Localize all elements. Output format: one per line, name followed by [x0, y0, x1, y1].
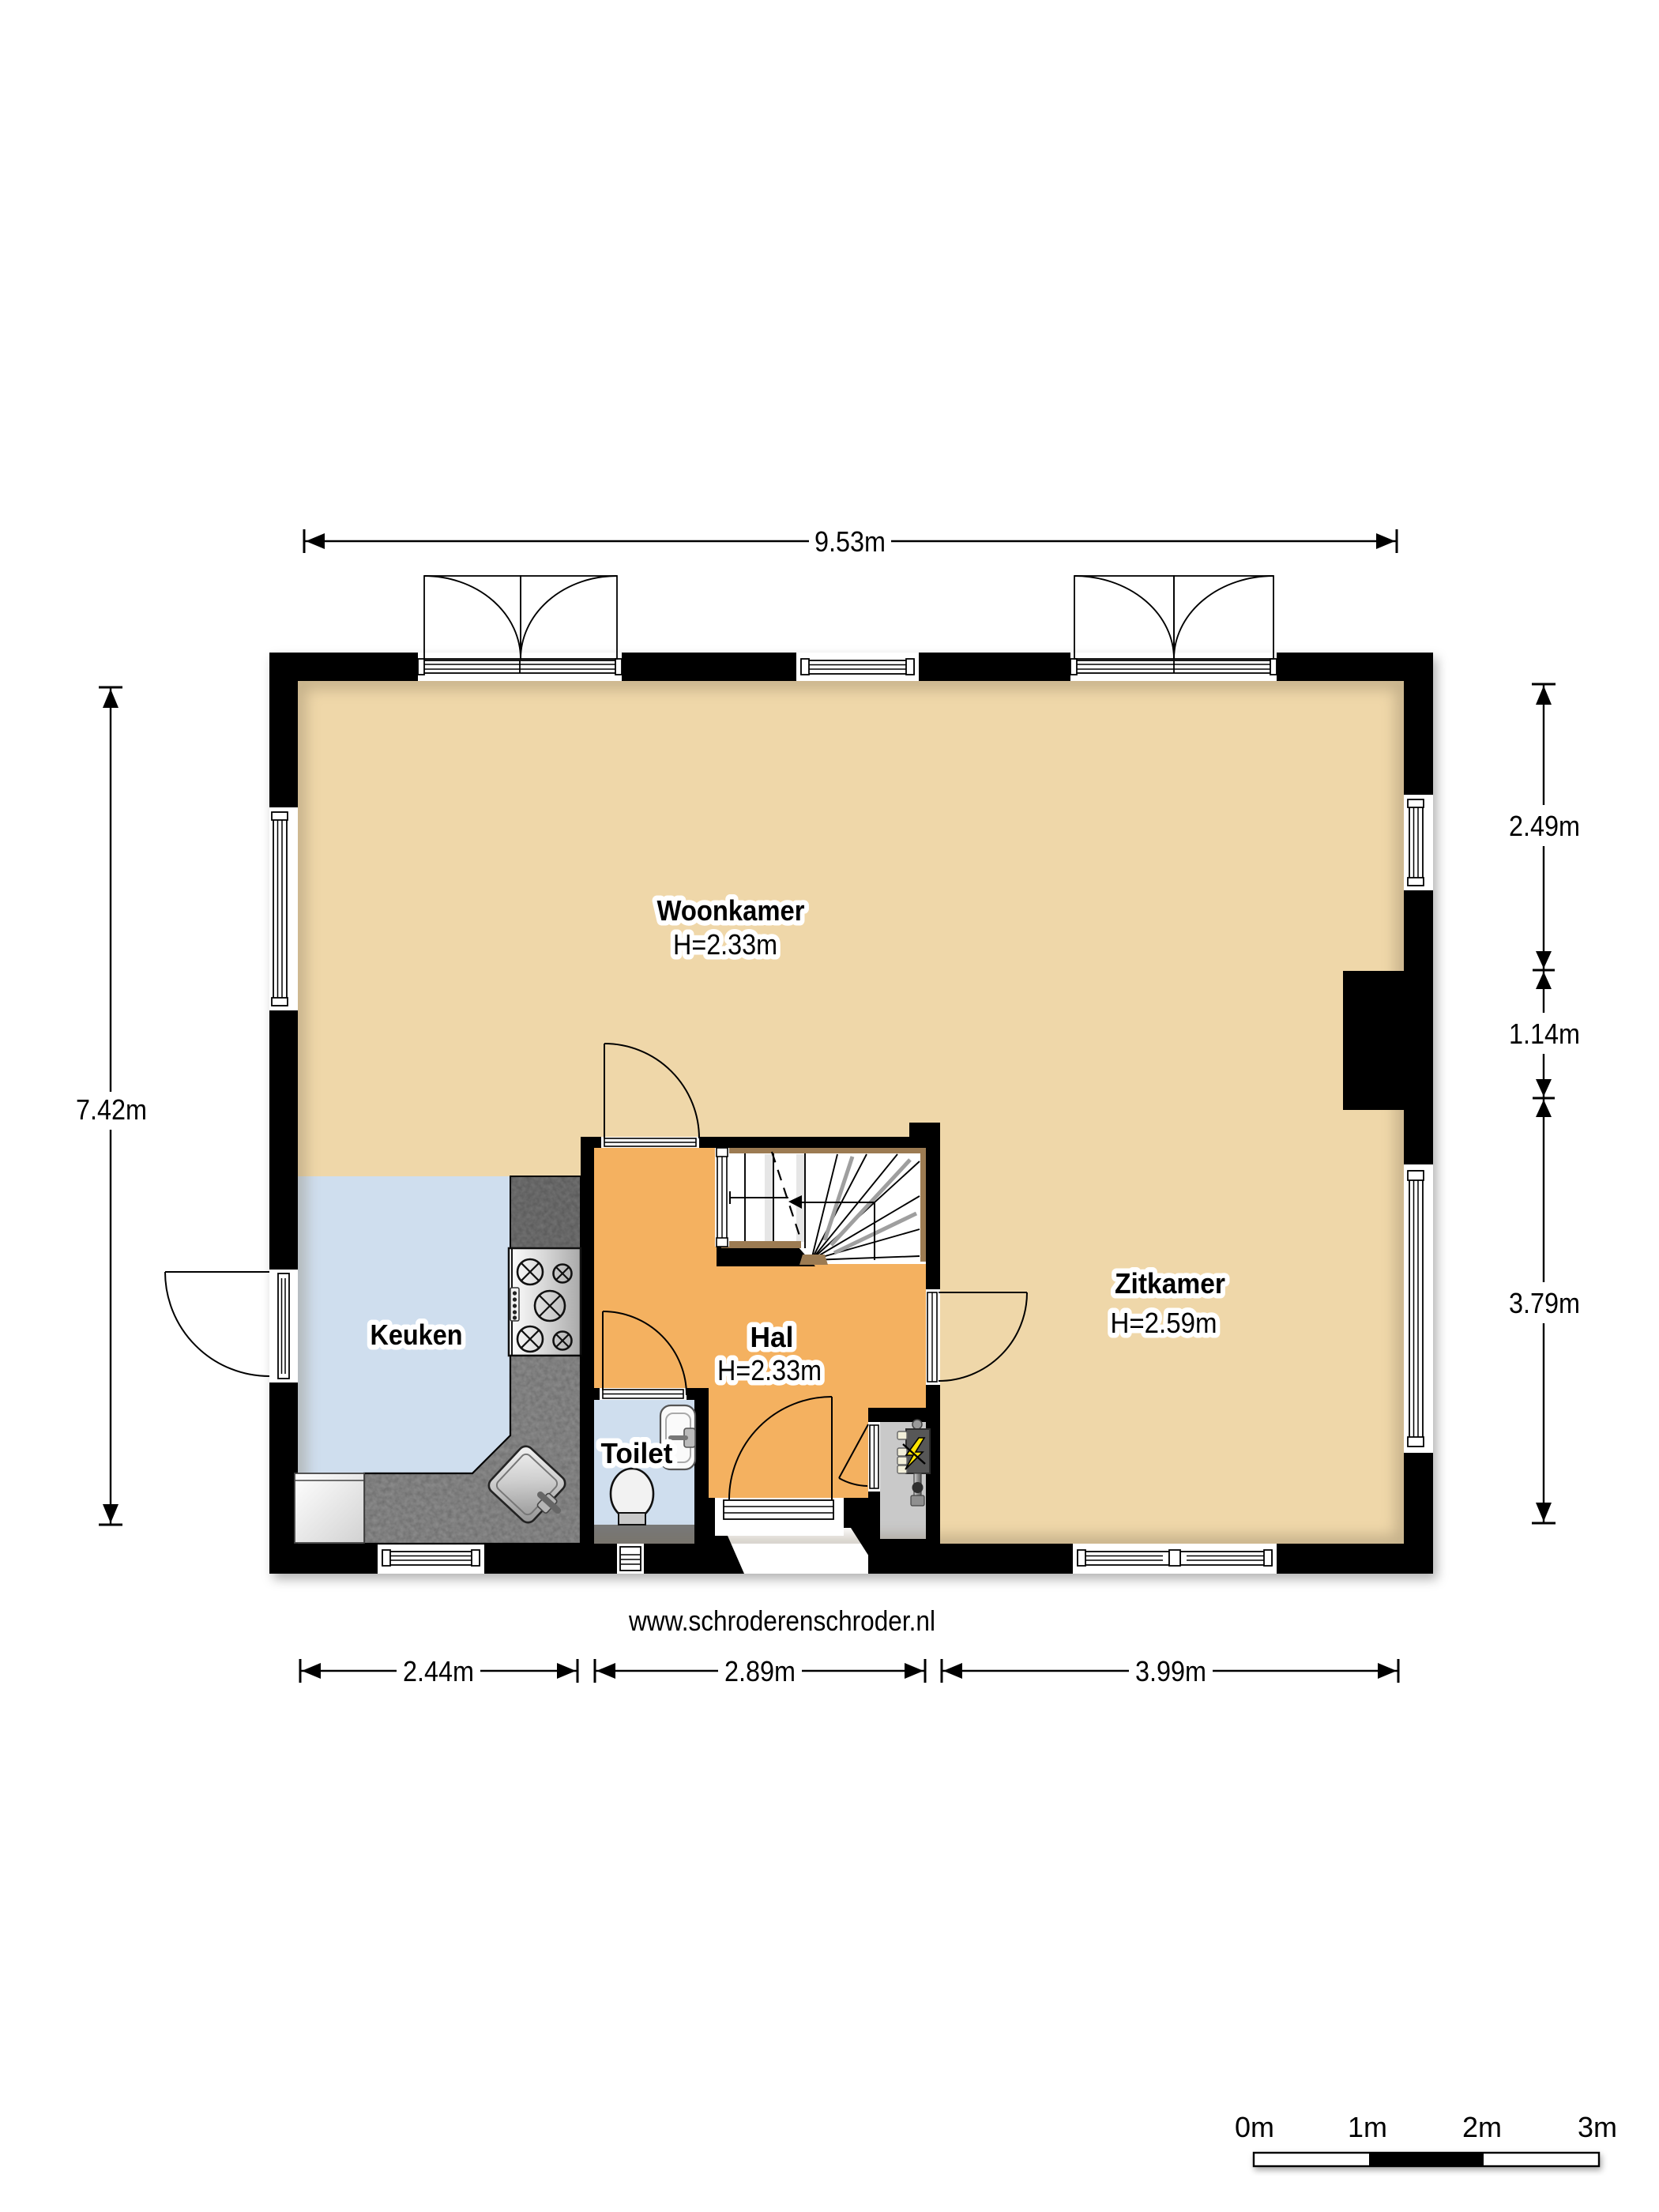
svg-text:7.42m: 7.42m [76, 1093, 147, 1126]
svg-text:3.79m: 3.79m [1509, 1287, 1580, 1319]
svg-text:2m: 2m [1462, 2111, 1502, 2143]
svg-text:Woonkamer: Woonkamer [657, 894, 805, 927]
svg-text:Zitkamer: Zitkamer [1115, 1267, 1225, 1300]
svg-text:1.14m: 1.14m [1509, 1018, 1580, 1050]
svg-text:www.schroderenschroder.nl: www.schroderenschroder.nl [628, 1604, 935, 1637]
svg-text:H=2.59m: H=2.59m [1111, 1307, 1217, 1339]
svg-text:3.99m: 3.99m [1135, 1655, 1206, 1687]
svg-text:Hal: Hal [750, 1321, 794, 1353]
svg-text:2.49m: 2.49m [1509, 810, 1580, 842]
svg-text:3m: 3m [1578, 2111, 1617, 2143]
svg-text:0m: 0m [1235, 2111, 1274, 2143]
svg-text:H=2.33m: H=2.33m [673, 928, 777, 961]
svg-text:1m: 1m [1348, 2111, 1387, 2143]
svg-text:2.44m: 2.44m [403, 1655, 474, 1687]
svg-text:Toilet: Toilet [601, 1437, 673, 1469]
svg-text:2.89m: 2.89m [724, 1655, 796, 1687]
svg-text:Keuken: Keuken [371, 1319, 463, 1351]
svg-text:9.53m: 9.53m [814, 525, 886, 558]
svg-text:H=2.33m: H=2.33m [717, 1354, 822, 1386]
